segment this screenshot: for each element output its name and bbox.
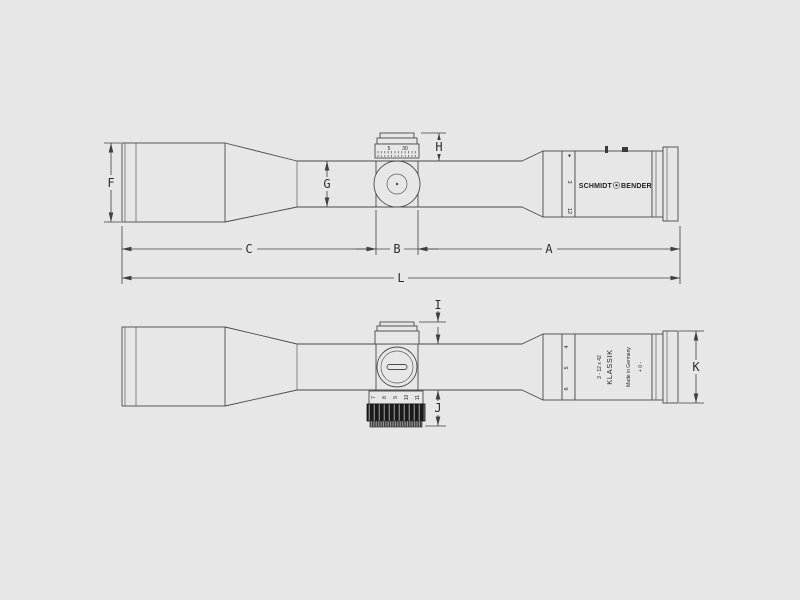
elevation-turret-cap-top — [380, 322, 414, 326]
dim-label-F: F — [107, 176, 114, 190]
windage-turret-center-dot — [396, 183, 398, 185]
model-series-text: KLASSIK — [605, 349, 614, 384]
dim-label-J: J — [434, 401, 441, 415]
eyepiece-taper-bottom — [522, 207, 543, 217]
brand-text-right: BENDER — [621, 183, 652, 190]
turret-scale-number: 30 — [402, 146, 408, 152]
mag-ring-number: 6 — [564, 387, 570, 390]
eyepiece-taper-top — [522, 334, 543, 344]
dim-label-G: G — [323, 177, 330, 191]
eyecup-ring — [663, 331, 678, 403]
bell-taper-top — [225, 327, 297, 344]
bell-taper-top — [225, 143, 297, 161]
mag-ring-number: 12 — [566, 208, 572, 214]
dim-label-L: L — [397, 271, 404, 285]
dim-label-A: A — [545, 242, 553, 256]
dim-label-H: H — [435, 140, 442, 154]
eyepiece-screw-mark — [605, 146, 608, 153]
eyepiece-taper-bottom — [522, 390, 543, 400]
objective-bell — [122, 327, 225, 406]
mag-ring-number: 5 — [564, 366, 570, 369]
knob-bottom-ring — [370, 421, 422, 427]
elevation-turret-cap-mid — [377, 326, 417, 331]
eyepiece-taper-top — [522, 151, 543, 161]
magnification-ring-knurl — [543, 151, 562, 217]
diopter-text: + 0 - — [638, 362, 644, 372]
brand-logo-dot-icon — [615, 184, 617, 186]
dim-label-B: B — [393, 242, 400, 256]
dim-label-I: I — [434, 298, 441, 312]
riflescope-dimension-drawing: 5 30 ▸ 3 12 SCHMIDT BENDER F — [0, 0, 800, 600]
elevation-turret-cap-top — [380, 133, 414, 138]
mag-ring-number: 4 — [564, 345, 570, 348]
mag-ring-number: 3 — [566, 180, 572, 183]
model-magnification-text: 3 - 12 x 42 — [597, 355, 603, 379]
parallax-number: 11 — [415, 395, 421, 400]
brand-text-left: SCHMIDT — [579, 183, 613, 190]
origin-text: Made in Germany — [626, 347, 632, 387]
dim-label-C: C — [245, 242, 252, 256]
objective-bell — [122, 143, 225, 222]
drawing-canvas: 5 30 ▸ 3 12 SCHMIDT BENDER F — [0, 0, 800, 600]
eyepiece-step-ring — [652, 151, 663, 217]
parallax-number: 10 — [404, 395, 410, 401]
parallax-number: 9 — [393, 396, 399, 399]
eyepiece-index-mark — [622, 147, 628, 152]
parallax-number: 7 — [371, 396, 377, 399]
elevation-turret-cap-mid — [377, 138, 417, 144]
bell-taper-bottom — [225, 207, 297, 222]
magnification-ring-knurl — [543, 334, 562, 400]
knob-rubber-grip — [367, 404, 425, 421]
scope-side-view-bottom: 7 8 9 10 11 4 5 6 3 - 12 x 42 KLASSIK Ma… — [122, 322, 678, 427]
bell-taper-bottom — [225, 390, 297, 406]
eyepiece-step-ring — [652, 334, 663, 400]
scope-side-view-top: 5 30 ▸ 3 12 SCHMIDT BENDER — [122, 133, 678, 222]
mag-ring-index: ▸ — [566, 155, 572, 158]
dim-label-K: K — [692, 360, 700, 374]
elevation-turret-base — [375, 331, 419, 344]
turret-tick-marks — [377, 151, 417, 157]
windage-coin-slot — [387, 365, 407, 370]
turret-scale-number: 5 — [388, 146, 391, 152]
parallax-number: 8 — [382, 396, 388, 399]
eyecup-ring — [663, 147, 678, 221]
